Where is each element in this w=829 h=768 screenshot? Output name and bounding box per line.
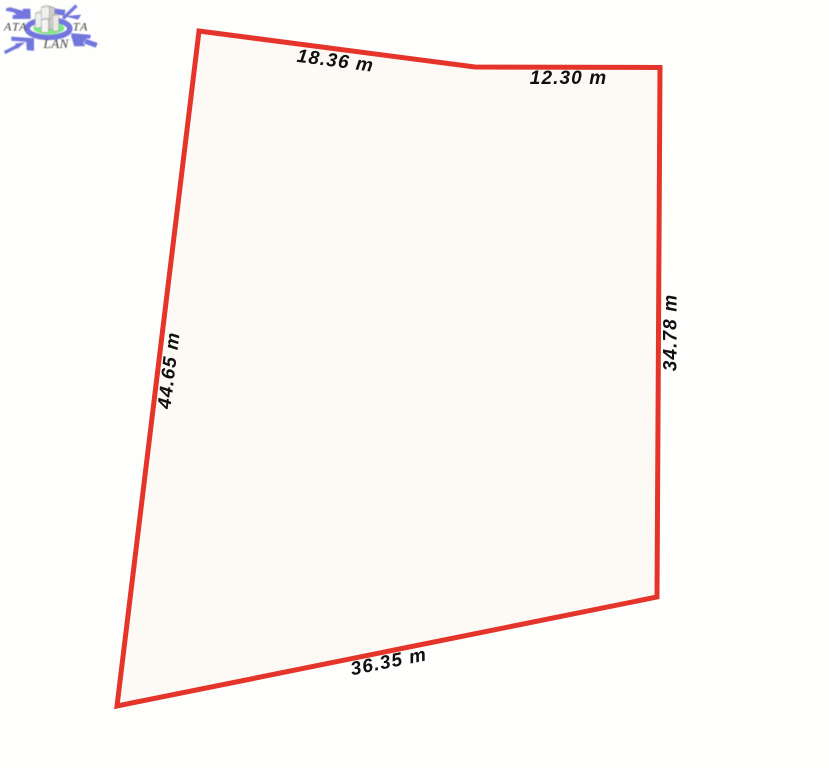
svg-text:ATA: ATA — [3, 19, 28, 33]
svg-text:34.78 m: 34.78 m — [660, 294, 681, 371]
svg-text:12.30 m: 12.30 m — [530, 68, 607, 89]
svg-text:TA: TA — [73, 19, 89, 33]
svg-text:LAN: LAN — [43, 36, 70, 51]
